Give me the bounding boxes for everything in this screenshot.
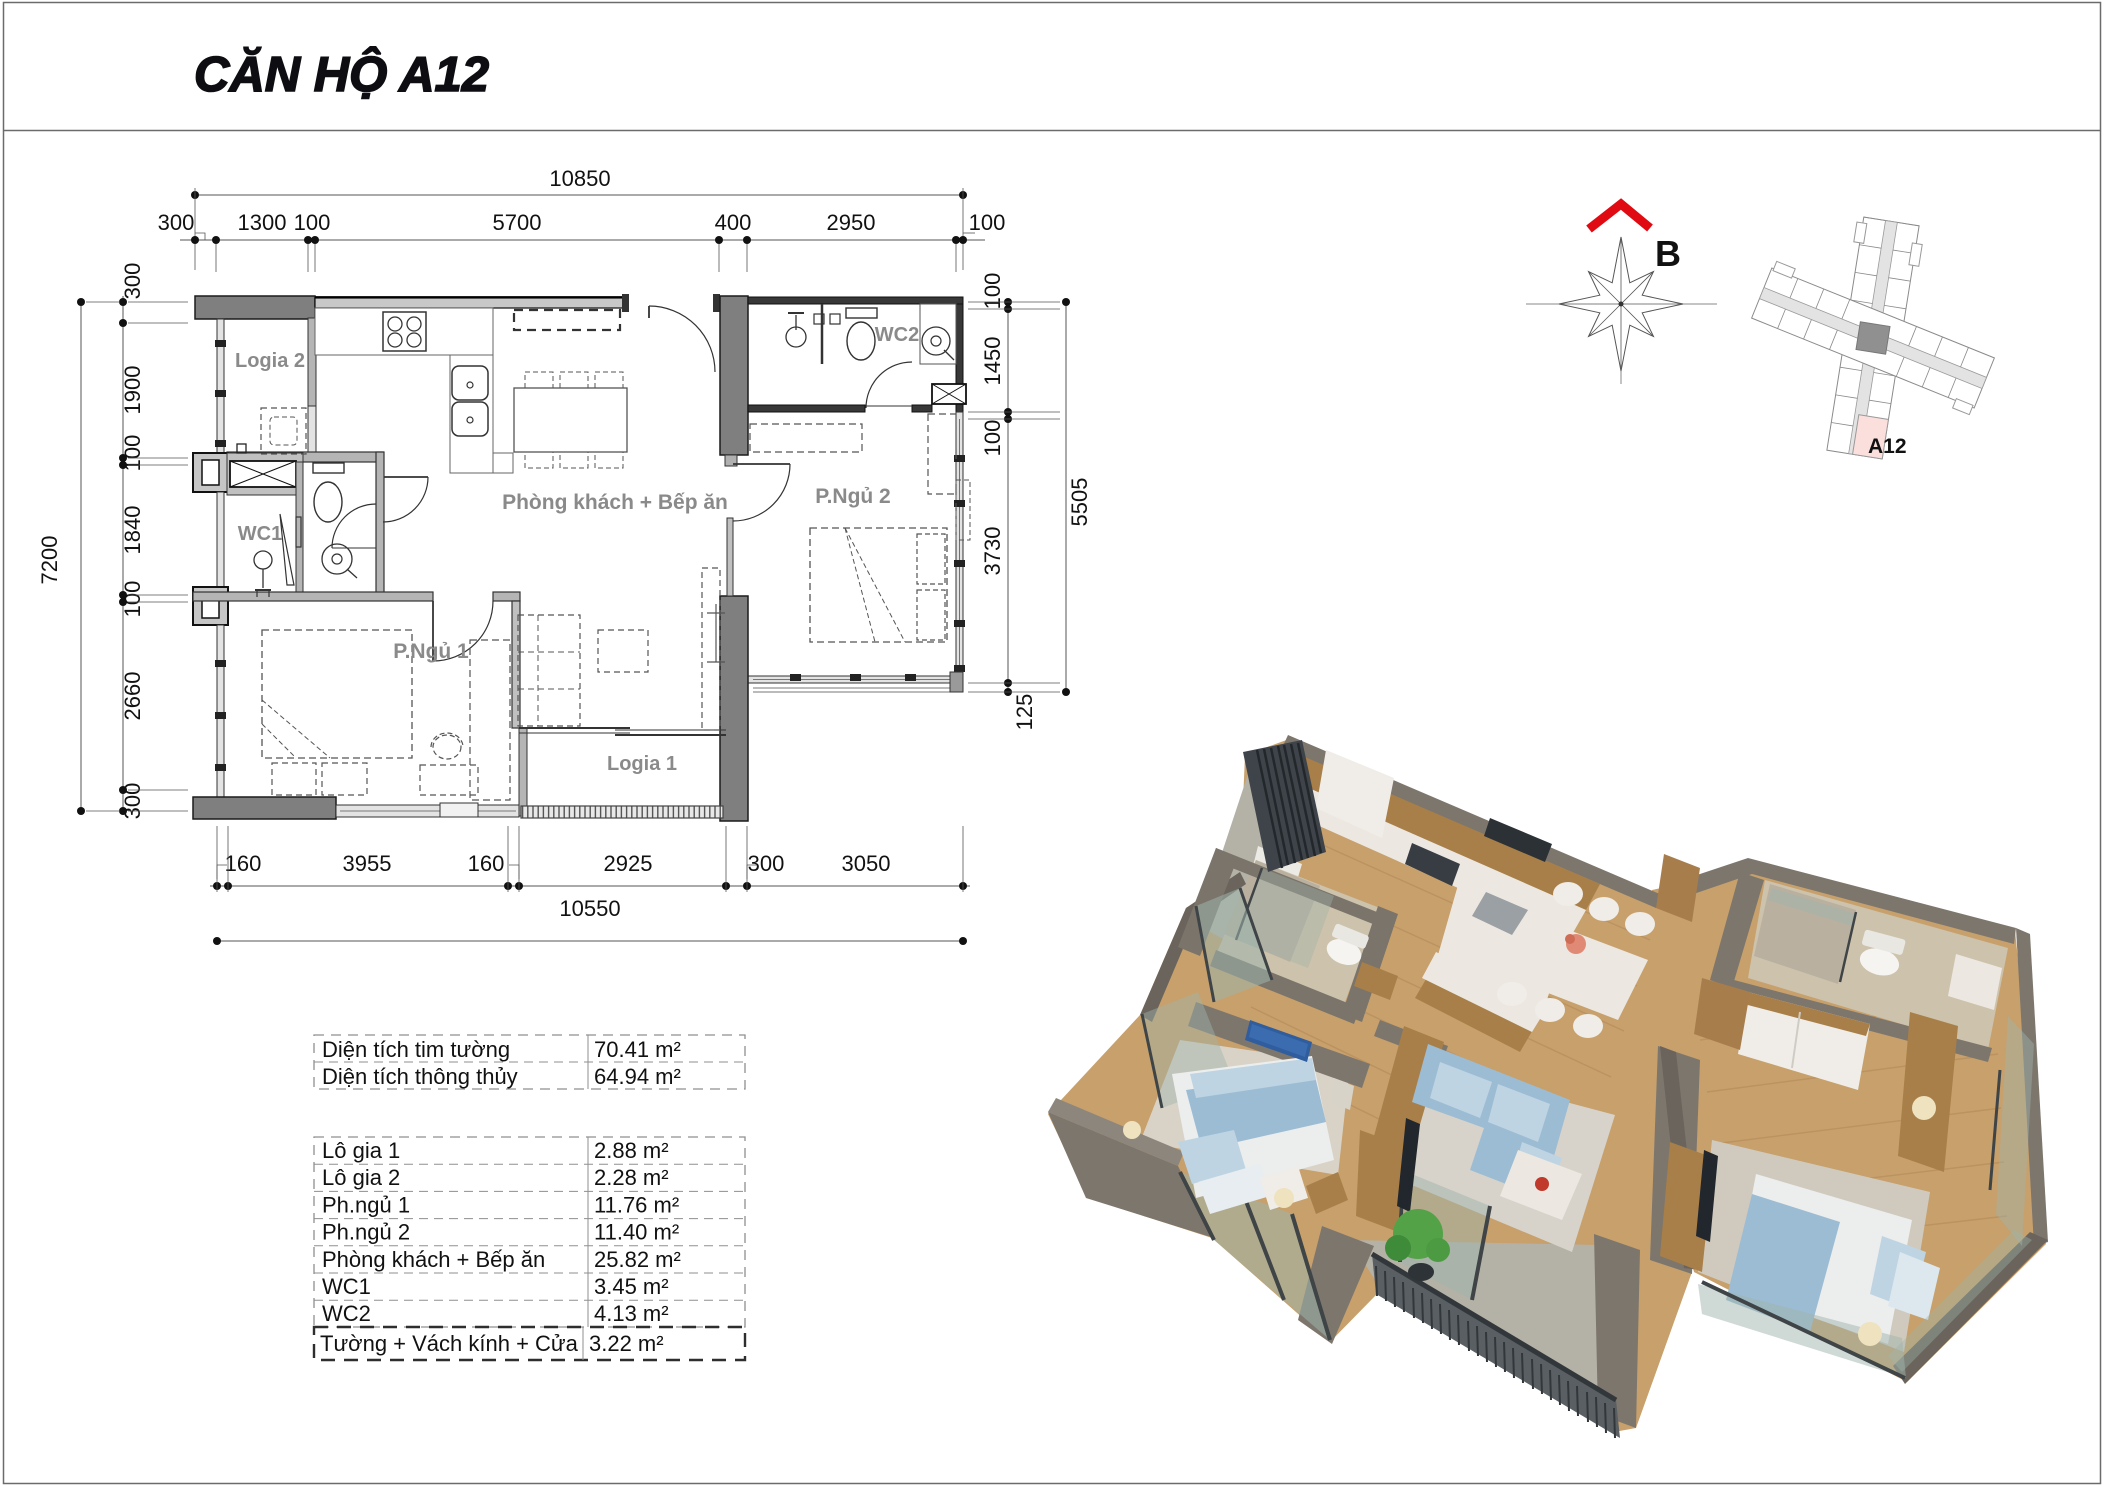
svg-text:4.13 m²: 4.13 m²	[594, 1301, 669, 1326]
svg-text:3.45 m²: 3.45 m²	[594, 1274, 669, 1299]
svg-text:Phòng khách + Bếp ăn: Phòng khách + Bếp ăn	[502, 491, 728, 514]
svg-text:Tường + Vách kính + Cửa: Tường + Vách kính + Cửa	[320, 1331, 579, 1356]
svg-text:300: 300	[120, 263, 145, 300]
svg-text:P.Ngủ 1: P.Ngủ 1	[393, 640, 469, 663]
svg-text:400: 400	[715, 210, 752, 235]
svg-text:Logia 1: Logia 1	[607, 753, 677, 775]
svg-text:CĂN HỘ A12: CĂN HỘ A12	[194, 47, 489, 102]
svg-text:160: 160	[225, 851, 262, 876]
svg-text:1450: 1450	[980, 337, 1005, 386]
svg-text:WC1: WC1	[322, 1274, 371, 1299]
svg-text:7200: 7200	[37, 536, 62, 585]
svg-text:2950: 2950	[827, 210, 876, 235]
svg-text:25.82 m²: 25.82 m²	[594, 1247, 681, 1272]
svg-text:WC2: WC2	[875, 324, 919, 346]
svg-text:5505: 5505	[1067, 478, 1092, 527]
svg-text:Diện tích thông thủy: Diện tích thông thủy	[322, 1064, 518, 1089]
svg-text:3.22 m²: 3.22 m²	[589, 1331, 664, 1356]
svg-text:1840: 1840	[120, 506, 145, 555]
svg-text:100: 100	[294, 210, 331, 235]
svg-text:1300: 1300	[238, 210, 287, 235]
svg-text:11.76 m²: 11.76 m²	[594, 1192, 679, 1217]
svg-text:3050: 3050	[842, 851, 891, 876]
svg-text:160: 160	[468, 851, 505, 876]
svg-text:100: 100	[120, 581, 145, 618]
svg-text:Lô gia 1: Lô gia 1	[322, 1138, 400, 1163]
svg-text:Phòng khách + Bếp ăn: Phòng khách + Bếp ăn	[322, 1247, 545, 1272]
svg-text:2.28 m²: 2.28 m²	[594, 1165, 669, 1190]
svg-text:Ph.ngủ 2: Ph.ngủ 2	[322, 1220, 410, 1245]
svg-text:64.94 m²: 64.94 m²	[594, 1064, 681, 1089]
svg-text:2925: 2925	[604, 851, 653, 876]
svg-text:Ph.ngủ 1: Ph.ngủ 1	[322, 1192, 410, 1217]
svg-text:300: 300	[748, 851, 785, 876]
svg-text:WC1: WC1	[238, 523, 282, 545]
svg-text:2660: 2660	[120, 672, 145, 721]
svg-text:100: 100	[980, 420, 1005, 457]
svg-text:WC2: WC2	[322, 1301, 371, 1326]
svg-text:10850: 10850	[549, 166, 610, 191]
svg-text:11.40 m²: 11.40 m²	[594, 1220, 679, 1245]
svg-text:5700: 5700	[493, 210, 542, 235]
svg-text:3730: 3730	[980, 527, 1005, 576]
svg-text:100: 100	[980, 273, 1005, 310]
svg-text:Diện tích tim tường: Diện tích tim tường	[322, 1037, 510, 1062]
svg-text:P.Ngủ 2: P.Ngủ 2	[815, 485, 890, 508]
svg-text:Lô gia 2: Lô gia 2	[322, 1165, 400, 1190]
svg-text:A12: A12	[1868, 435, 1907, 458]
svg-text:B: B	[1655, 233, 1681, 274]
svg-text:125: 125	[1012, 694, 1037, 731]
svg-text:100: 100	[120, 435, 145, 472]
svg-text:70.41 m²: 70.41 m²	[594, 1037, 681, 1062]
svg-text:10550: 10550	[559, 896, 620, 921]
svg-text:100: 100	[969, 210, 1006, 235]
svg-text:300: 300	[158, 210, 195, 235]
svg-text:300: 300	[120, 783, 145, 820]
svg-text:Logia 2: Logia 2	[235, 350, 305, 372]
svg-text:3955: 3955	[343, 851, 392, 876]
svg-text:1900: 1900	[120, 366, 145, 415]
svg-text:2.88 m²: 2.88 m²	[594, 1138, 669, 1163]
